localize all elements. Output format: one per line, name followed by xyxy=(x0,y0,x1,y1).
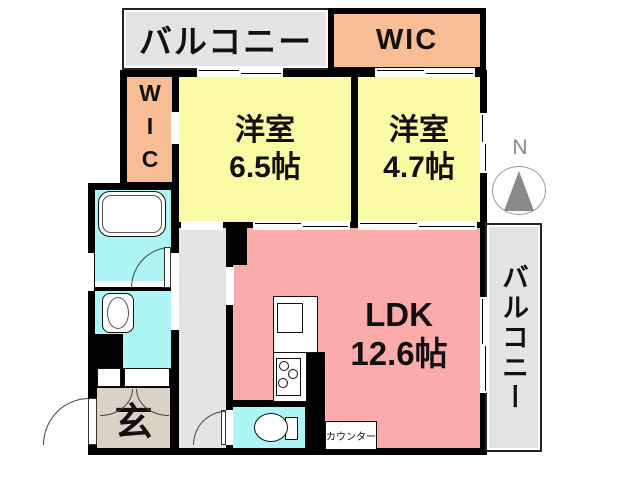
window-opening xyxy=(88,253,94,291)
shoe-cabinet xyxy=(124,368,170,387)
bedroom-6-5-size: 6.5帖 xyxy=(229,150,301,187)
balcony-right-label: バルコニー xyxy=(494,263,533,413)
north-arrow-icon xyxy=(504,171,534,211)
balcony-top-label: バルコニー xyxy=(139,15,313,63)
bedroom-4-7: 洋室 4.7帖 xyxy=(358,77,480,222)
wic-top-label: WIC xyxy=(376,24,438,57)
entrance-door-arc xyxy=(43,398,89,445)
balcony-door-opening xyxy=(480,297,487,393)
entrance-door-leaf xyxy=(88,398,97,445)
compass-n-label: N xyxy=(492,136,548,160)
ldk-size: 12.6帖 xyxy=(350,335,447,374)
door-opening xyxy=(226,267,234,305)
window-opening xyxy=(197,68,283,77)
sliding-door-opening xyxy=(358,221,477,230)
bedroom-4-7-name: 洋室 xyxy=(383,113,455,150)
burner-icon xyxy=(288,369,298,379)
wall-segment xyxy=(95,334,123,368)
balcony-top: バルコニー xyxy=(122,8,330,70)
wall-segment xyxy=(227,225,247,265)
ldk-name: LDK xyxy=(350,296,447,335)
burner-icon xyxy=(278,378,288,388)
bathroom-door-leaf xyxy=(164,247,171,288)
window-opening xyxy=(375,68,475,77)
door-opening xyxy=(181,221,223,230)
counter-box: カウンター xyxy=(325,421,377,450)
balcony-right: バルコニー xyxy=(485,223,542,452)
door-opening xyxy=(226,410,233,445)
floor-plan: バルコニー バルコニー WIC WIC 洋室 6.5帖 洋室 4.7帖 LDK … xyxy=(0,0,640,480)
wic-left-label: WIC xyxy=(136,80,163,179)
compass: N xyxy=(492,136,548,216)
washbasin-icon xyxy=(102,293,134,333)
shoe-cabinet xyxy=(97,368,121,387)
door-opening xyxy=(171,112,179,144)
sink-icon xyxy=(277,303,303,333)
bathtub-icon xyxy=(98,191,166,237)
bedroom-6-5-name: 洋室 xyxy=(229,113,301,150)
door-opening xyxy=(171,253,179,330)
toilet-icon xyxy=(254,413,288,442)
wic-left-room: WIC xyxy=(127,77,172,182)
bedroom-6-5: 洋室 6.5帖 xyxy=(179,77,351,222)
sliding-door-opening xyxy=(253,221,350,230)
ldk-label-box: LDK 12.6帖 xyxy=(316,294,482,376)
wic-top-room: WIC xyxy=(328,8,486,73)
counter-label: カウンター xyxy=(326,428,376,443)
window-opening xyxy=(480,113,487,173)
bedroom-4-7-size: 4.7帖 xyxy=(383,150,455,187)
burner-icon xyxy=(279,361,289,371)
